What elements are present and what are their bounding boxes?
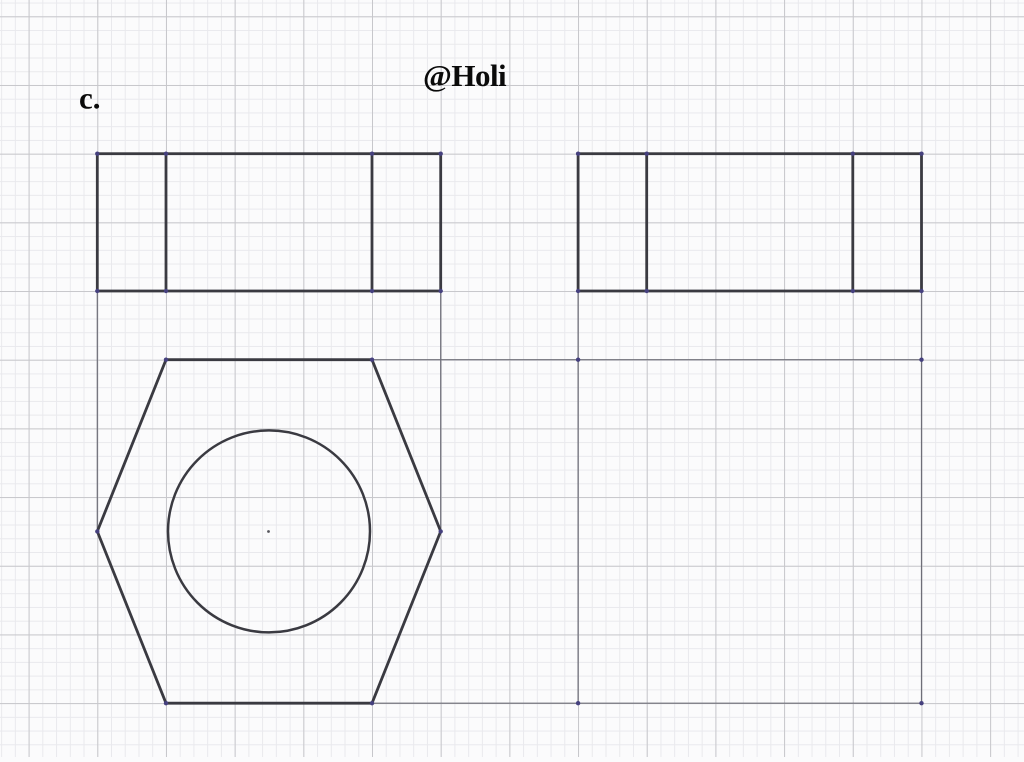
svg-text:c.: c. [79, 80, 101, 115]
svg-text:@Holi: @Holi [423, 58, 507, 93]
